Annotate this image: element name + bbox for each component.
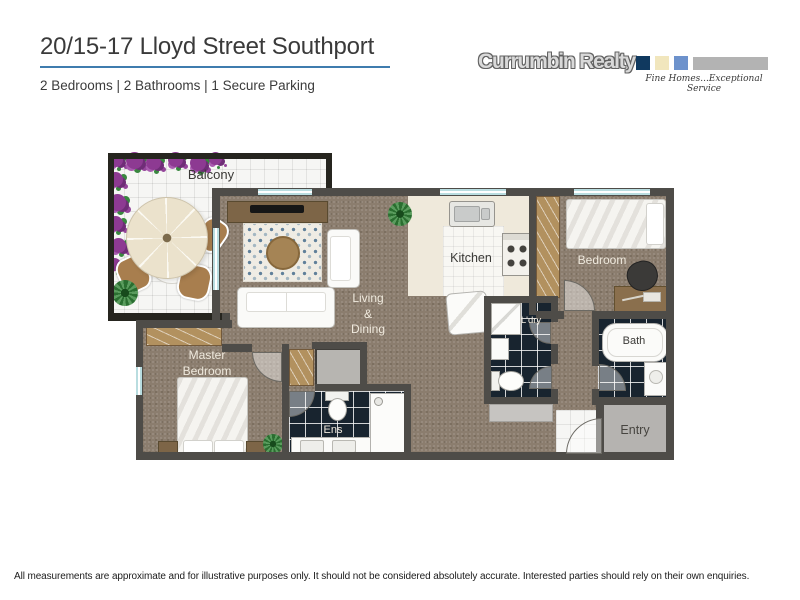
logo-square-cream xyxy=(655,56,669,70)
shower xyxy=(370,393,406,455)
wall-segment xyxy=(551,389,558,404)
sofa xyxy=(237,287,335,328)
wall-segment xyxy=(484,296,491,404)
kitchen-sink xyxy=(449,201,495,227)
room-label-ensuite: Ens xyxy=(308,423,358,437)
window xyxy=(574,189,650,195)
indoor-plant xyxy=(388,202,412,226)
laundry-cabinet xyxy=(491,338,509,360)
hallway-mat xyxy=(489,404,553,422)
linen-closet xyxy=(315,348,364,388)
potted-plant xyxy=(112,280,138,306)
balcony-sliding-door xyxy=(213,228,219,290)
wardrobe xyxy=(289,349,314,386)
wall-segment xyxy=(484,296,558,303)
title-underline xyxy=(40,66,390,68)
wall-segment xyxy=(484,397,558,404)
room-label-master-bedroom: Master Bedroom xyxy=(160,348,254,379)
logo-bar xyxy=(693,57,768,70)
window xyxy=(136,367,142,395)
room-label-kitchen: Kitchen xyxy=(425,250,517,266)
disclaimer-text: All measurements are approximate and for… xyxy=(14,571,786,582)
page-title: 20/15-17 Lloyd Street Southport xyxy=(40,33,374,61)
wall-segment xyxy=(596,397,674,405)
window xyxy=(440,189,506,195)
room-label-bath: Bath xyxy=(602,334,666,348)
wall-segment xyxy=(592,311,599,366)
coffee-table xyxy=(266,236,300,270)
wall-segment xyxy=(108,153,114,319)
logo-square-navy xyxy=(636,56,650,70)
wall-segment xyxy=(108,153,332,159)
room-label-living-dining: Living & Dining xyxy=(332,291,404,338)
room-label-balcony: Balcony xyxy=(166,167,256,184)
wall-segment xyxy=(315,384,411,391)
wall-segment xyxy=(282,344,289,459)
bath-basin xyxy=(649,370,663,384)
room-label-laundry: L'dry xyxy=(507,315,555,327)
room-label-bedroom: Bedroom xyxy=(560,253,644,269)
wall-segment xyxy=(312,342,364,349)
patio-umbrella xyxy=(126,197,208,279)
wall-segment xyxy=(666,188,674,460)
wall-segment xyxy=(282,384,289,391)
indoor-plant xyxy=(263,434,283,454)
room-label-entry: Entry xyxy=(604,422,666,438)
wardrobe xyxy=(536,196,560,298)
wardrobe xyxy=(146,326,222,346)
tv-screen xyxy=(250,205,304,213)
wall-segment xyxy=(551,344,558,364)
floorplan-flyer: 20/15-17 Lloyd Street Southport 2 Bedroo… xyxy=(0,0,800,600)
property-features: 2 Bedrooms | 2 Bathrooms | 1 Secure Park… xyxy=(40,78,315,93)
agency-tagline: Fine Homes...Exceptional Service xyxy=(638,74,770,94)
armchair xyxy=(327,229,360,288)
agency-logo-name: Currumbin Realty xyxy=(478,50,635,74)
wall-segment xyxy=(222,313,230,328)
logo-square-blue xyxy=(674,56,688,70)
floor-plan: Balcony Kitchen Living & Dining Bedroom … xyxy=(108,152,678,464)
wall-segment xyxy=(404,384,411,460)
ensuite-toilet xyxy=(328,398,347,421)
wc-toilet xyxy=(498,371,524,391)
window xyxy=(258,189,312,195)
pillow xyxy=(646,203,664,245)
wall-segment xyxy=(594,311,674,319)
